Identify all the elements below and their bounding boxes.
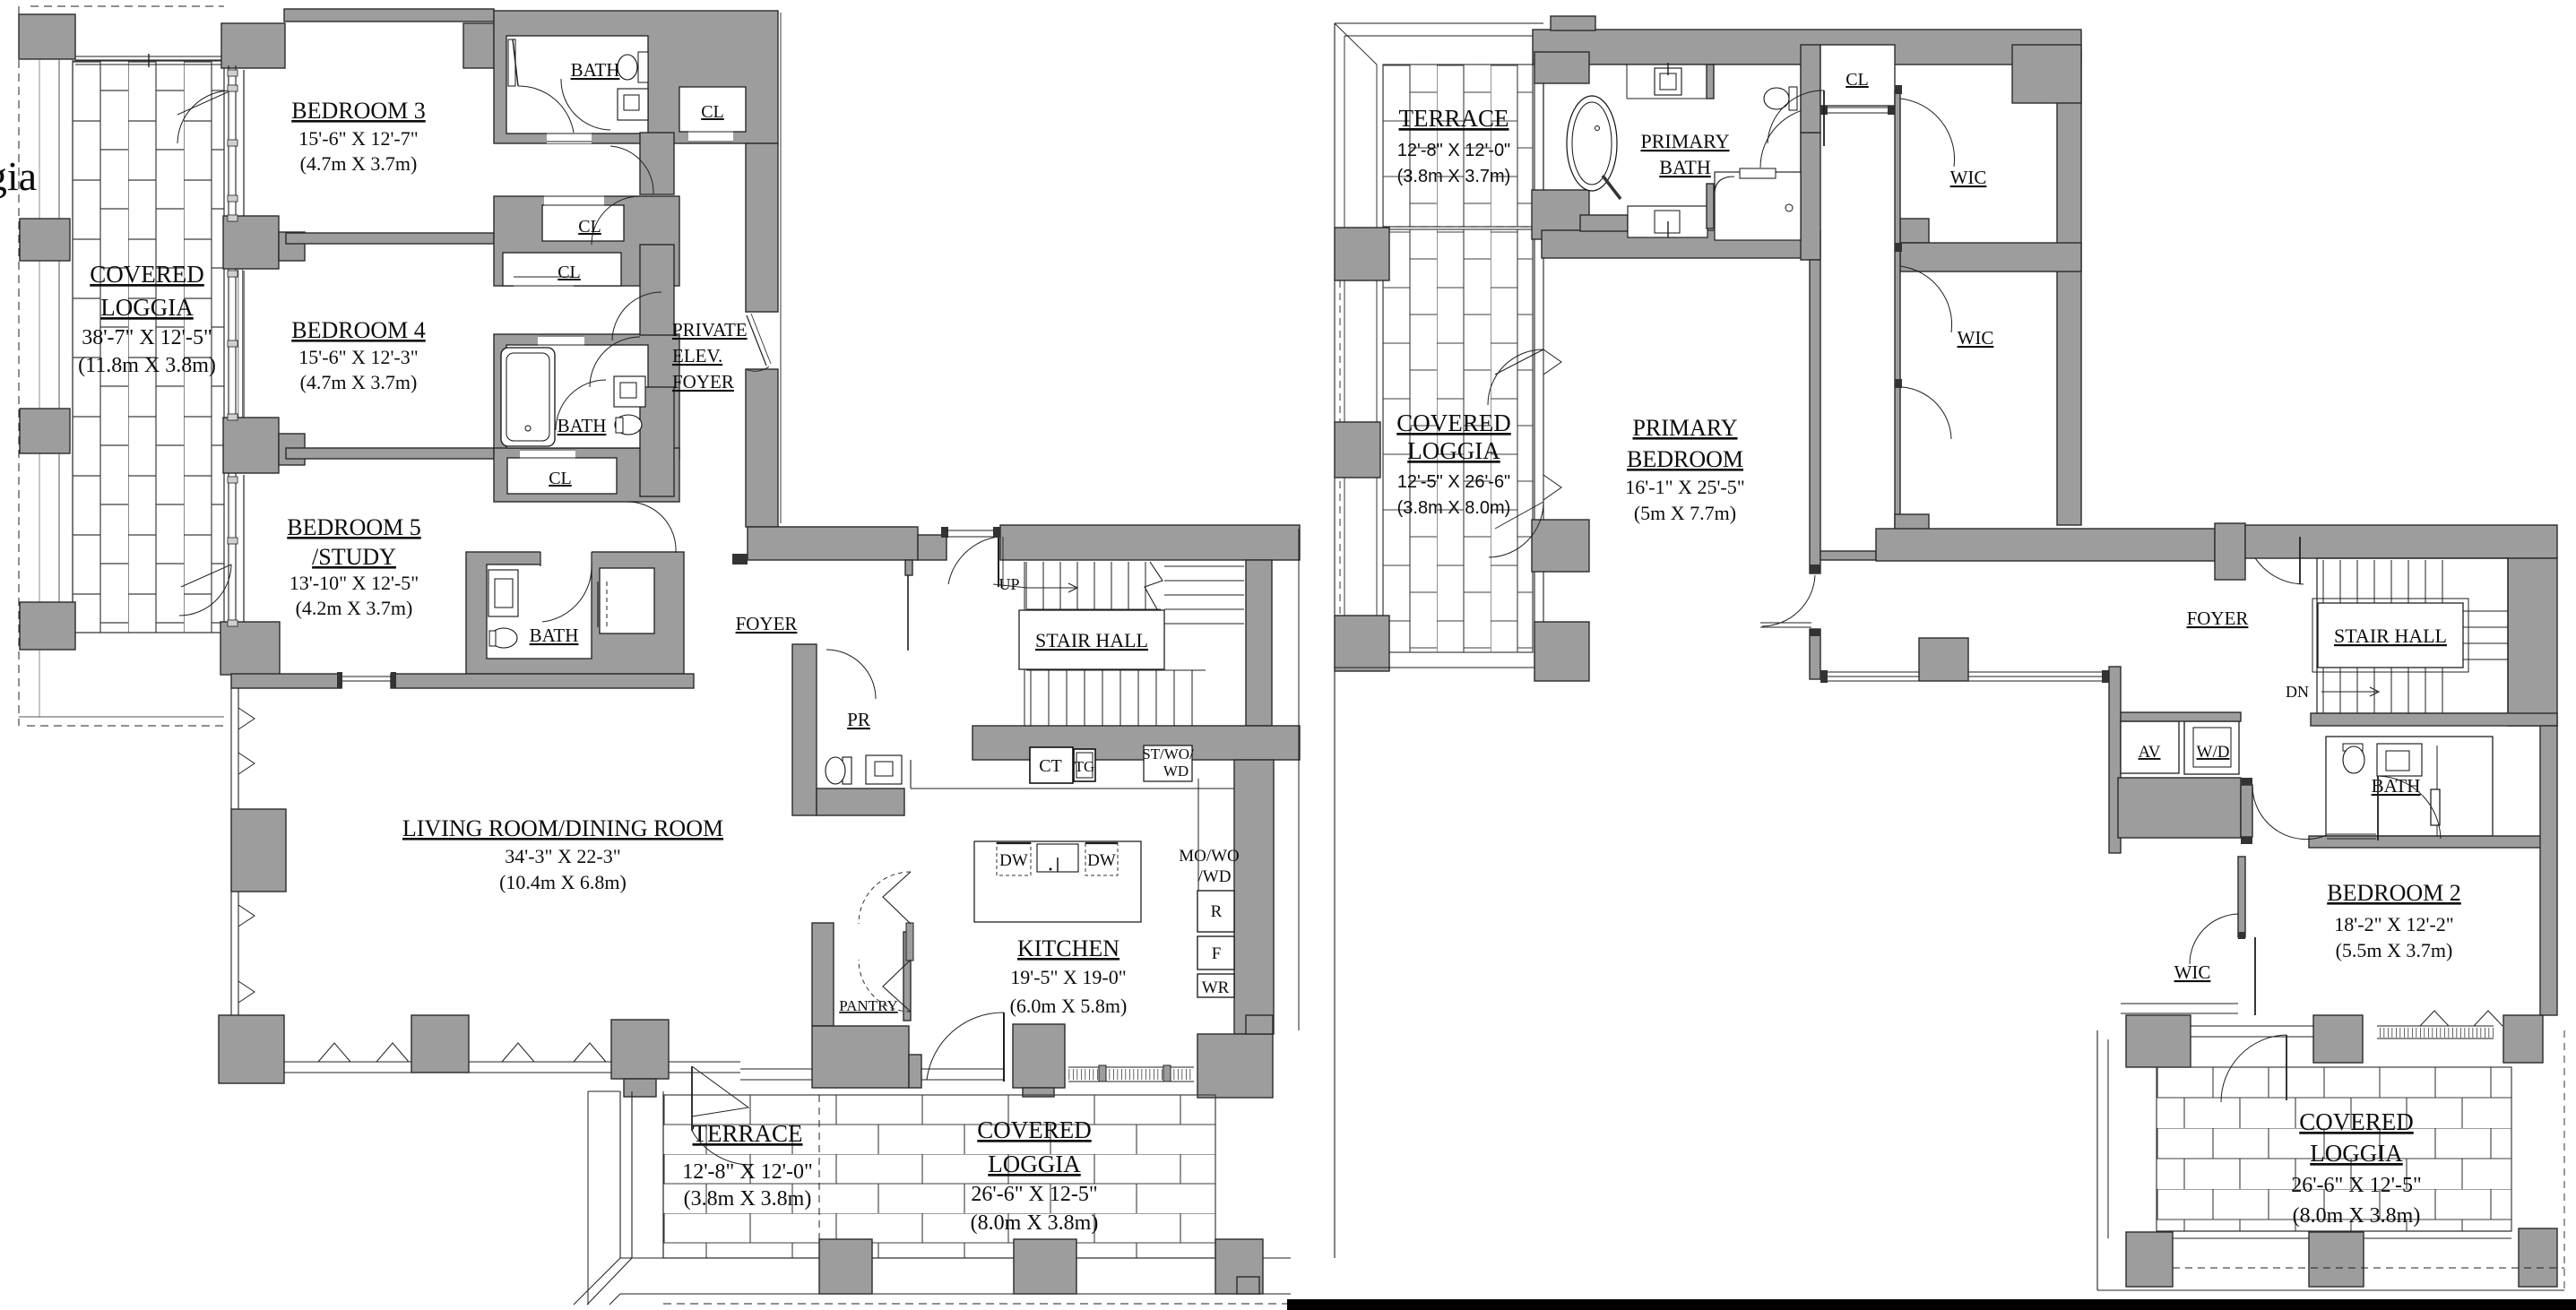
svg-text:STAIR HALL: STAIR HALL [2334, 625, 2447, 647]
svg-text:COVERED: COVERED [977, 1116, 1092, 1143]
svg-text:(5m X 7.7m): (5m X 7.7m) [1634, 502, 1736, 524]
svg-text:18'-2" X 12'-2": 18'-2" X 12'-2" [2334, 913, 2453, 935]
svg-text:BATH: BATH [571, 59, 620, 81]
svg-text:STAIR HALL: STAIR HALL [1035, 629, 1148, 651]
svg-text:12'-5" X 26'-6": 12'-5" X 26'-6" [1397, 472, 1510, 492]
svg-text:R: R [1211, 902, 1223, 921]
svg-text:12'-8" X 12'-0": 12'-8" X 12'-0" [682, 1160, 813, 1184]
svg-text:FOYER: FOYER [736, 613, 798, 634]
svg-text:(4.7m X 3.7m): (4.7m X 3.7m) [300, 152, 418, 175]
svg-text:15'-6" X 12'-3": 15'-6" X 12'-3" [298, 346, 418, 368]
svg-text:FOYER: FOYER [672, 371, 734, 392]
svg-text:(10.4m X 6.8m): (10.4m X 6.8m) [499, 871, 627, 893]
svg-text:CL: CL [578, 217, 601, 237]
svg-text:DW: DW [1087, 851, 1116, 870]
svg-text:(4.7m X 3.7m): (4.7m X 3.7m) [300, 371, 418, 393]
svg-text:PR: PR [847, 709, 870, 730]
svg-text:WR: WR [1202, 978, 1230, 997]
svg-text:BEDROOM: BEDROOM [1627, 446, 1743, 472]
svg-text:WD: WD [1163, 763, 1189, 780]
svg-text:TERRACE: TERRACE [692, 1120, 802, 1147]
svg-text:CL: CL [558, 263, 581, 282]
svg-text:PRIVATE: PRIVATE [672, 319, 748, 340]
svg-text:(11.8m X 3.8m): (11.8m X 3.8m) [78, 354, 216, 377]
svg-text:(6.0m X 5.8m): (6.0m X 5.8m) [1010, 995, 1128, 1017]
svg-text:34'-3" X 22-3": 34'-3" X 22-3" [505, 845, 620, 867]
svg-text:UP: UP [998, 575, 1019, 593]
svg-text:CT: CT [1039, 756, 1062, 776]
svg-text:38'-7" X 12'-5": 38'-7" X 12'-5" [82, 326, 212, 349]
svg-text:PRIMARY: PRIMARY [1640, 130, 1729, 152]
svg-text:WIC: WIC [2174, 961, 2211, 983]
svg-text:LOGGIA: LOGGIA [1407, 437, 1500, 464]
svg-text:(3.8m X 3.8m): (3.8m X 3.8m) [684, 1187, 812, 1211]
svg-text:(4.2m X 3.7m): (4.2m X 3.7m) [296, 597, 413, 619]
svg-text:TERRACE: TERRACE [1398, 105, 1508, 132]
svg-text:PRIMARY: PRIMARY [1632, 415, 1737, 441]
svg-text:LOGGIA: LOGGIA [988, 1151, 1081, 1177]
svg-text:CL: CL [701, 102, 724, 122]
svg-text:KITCHEN: KITCHEN [1017, 935, 1119, 961]
svg-text:/STUDY: /STUDY [312, 544, 396, 570]
svg-text:(3.8m X 3.7m): (3.8m X 3.7m) [1397, 167, 1511, 186]
svg-text:BEDROOM 5: BEDROOM 5 [287, 514, 421, 540]
svg-text:TG: TG [1075, 758, 1095, 775]
svg-text:FOYER: FOYER [2187, 608, 2249, 629]
svg-text:15'-6" X 12'-7": 15'-6" X 12'-7" [298, 127, 418, 150]
svg-text:WIC: WIC [1950, 167, 1987, 188]
svg-text:26'-6" X 12'-5": 26'-6" X 12'-5" [2291, 1174, 2422, 1197]
svg-text:BATH: BATH [1659, 156, 1711, 178]
svg-text:DN: DN [2286, 683, 2309, 701]
svg-text:BEDROOM 3: BEDROOM 3 [291, 98, 426, 124]
svg-text:W/D: W/D [2197, 743, 2230, 762]
svg-text:19'-5" X 19-0": 19'-5" X 19-0" [1010, 966, 1126, 988]
svg-text:ELEV.: ELEV. [672, 345, 722, 366]
svg-text:BEDROOM 4: BEDROOM 4 [291, 317, 426, 343]
svg-text:gia: gia [0, 153, 37, 199]
svg-text:CL: CL [1846, 70, 1869, 90]
svg-text:LIVING ROOM/DINING ROOM: LIVING ROOM/DINING ROOM [402, 815, 723, 841]
svg-text:BATH: BATH [558, 415, 607, 436]
svg-text:CL: CL [549, 469, 572, 488]
svg-text:(5.5m X 3.7m): (5.5m X 3.7m) [2336, 939, 2453, 961]
svg-text:/WD: /WD [1198, 867, 1232, 886]
svg-text:BEDROOM 2: BEDROOM 2 [2327, 880, 2461, 906]
svg-text:16'-1" X 25'-5": 16'-1" X 25'-5" [1625, 476, 1744, 498]
svg-text:ST/WO/: ST/WO/ [1142, 745, 1194, 763]
svg-text:LOGGIA: LOGGIA [100, 294, 194, 321]
svg-text:DW: DW [999, 851, 1028, 870]
svg-text:F: F [1212, 944, 1222, 963]
svg-text:13'-10" X 12'-5": 13'-10" X 12'-5" [290, 572, 419, 594]
svg-text:COVERED: COVERED [2299, 1108, 2414, 1135]
svg-text:26'-6" X 12-5": 26'-6" X 12-5" [971, 1183, 1097, 1206]
svg-text:(8.0m X 3.8m): (8.0m X 3.8m) [2293, 1204, 2421, 1228]
svg-text:LOGGIA: LOGGIA [2310, 1140, 2403, 1167]
svg-text:COVERED: COVERED [1396, 409, 1511, 436]
svg-text:12'-8" X 12'-0": 12'-8" X 12'-0" [1397, 141, 1510, 160]
svg-text:PANTRY: PANTRY [839, 997, 898, 1014]
svg-text:WIC: WIC [1958, 327, 1994, 349]
svg-text:(8.0m X 3.8m): (8.0m X 3.8m) [971, 1211, 1099, 1235]
svg-text:(3.8m X 8.0m): (3.8m X 8.0m) [1397, 498, 1511, 518]
svg-text:BATH: BATH [530, 625, 579, 646]
svg-text:MO/WO: MO/WO [1179, 847, 1240, 866]
svg-text:AV: AV [2139, 743, 2161, 762]
svg-text:COVERED: COVERED [90, 261, 204, 288]
